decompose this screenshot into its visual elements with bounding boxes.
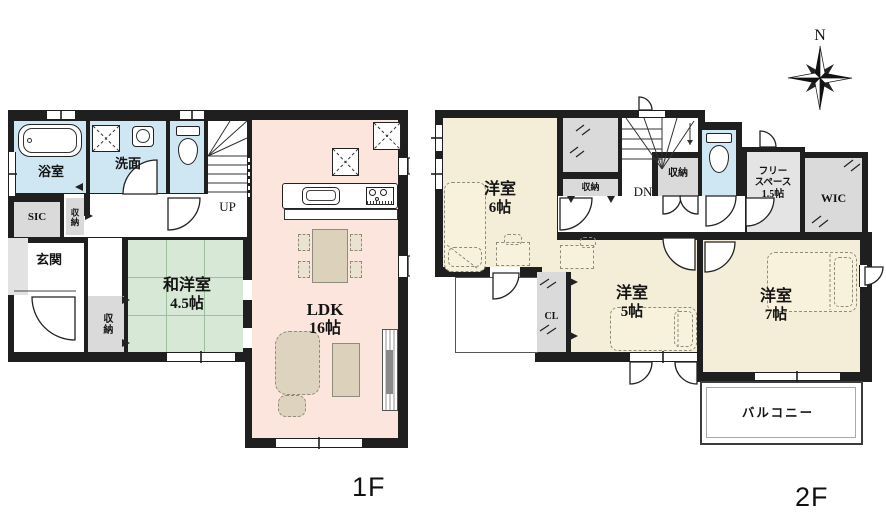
compass-rose: N [778,22,862,114]
window [859,265,868,287]
floor-plan-canvas: 浴室 洗面 SIC 収納 玄関 収納 和洋室4.5帖 LDK16帖 UP [0,0,886,532]
stairs-1f [208,121,247,199]
floor2-title: 2F [795,482,829,513]
bathtub-drain [27,138,32,143]
wall-stub [84,194,90,216]
dining-table [312,229,348,283]
window-arc-ldk [408,256,410,276]
toilet-tank-2f [706,133,732,143]
sliding-door-gap [243,328,252,348]
skylight-box [373,122,401,150]
sliding-door-gap [243,280,252,300]
free-space [747,152,800,232]
kitchen-counter-front [284,209,398,220]
window [435,125,443,151]
hallway-1f [64,194,247,237]
stove-burner [369,189,376,196]
tatami-grid-line [166,240,167,352]
bed-pillow [834,257,853,307]
window [276,438,362,448]
bedroom6-closet [563,118,618,172]
window [435,159,443,189]
window [167,352,235,362]
stove-grill [367,201,392,205]
tatami-grid-line [128,277,243,278]
floor2-plan: 洋室6帖 収納 DN 収納 フリー スペース 1.5帖 WIC CL 洋室5帖 … [430,95,886,460]
desk [560,245,594,269]
japanese-room [128,240,243,352]
wash-basin-bowl [136,129,150,143]
window [398,256,408,277]
window [398,158,408,175]
bed-pillow [674,311,693,347]
door-gap [490,267,520,277]
stair-storage [658,158,698,196]
window-arc-ldk [408,158,410,174]
roof-void-area [455,277,538,353]
coffee-table [332,343,360,397]
hall-storage [66,198,84,235]
top-storage-strip [563,179,618,196]
wic-room [805,158,862,232]
sofa-ottoman [278,395,306,417]
window-arc-bedroom5 [675,362,697,384]
window [755,372,840,381]
window-arc-stairs [639,97,652,110]
skylight-box [332,148,359,176]
dining-chair [298,234,310,251]
tatami-grid-line [128,315,243,316]
compass-north-label: N [814,27,826,44]
sofa [275,331,320,395]
lower-storage [88,296,124,352]
desk [496,242,530,266]
floor1-title: 1F [352,472,386,503]
toilet-tank-1f [176,126,200,136]
dining-chair [350,261,362,278]
window [639,110,665,118]
window-arc-freespace [760,131,776,147]
tv-screen [386,350,393,394]
closet-cl [537,272,566,352]
tatami-grid-line [204,240,205,352]
balcony-inner-line [706,387,856,438]
window [8,152,16,196]
window [630,352,697,362]
closet-front-strip [88,238,122,296]
washer-pan [92,125,120,152]
dining-chair [298,261,310,278]
dining-chair [350,234,362,251]
entrance-porch [8,238,28,295]
window [47,110,75,120]
window-arc-bedroom5 [630,362,652,384]
floor1-plan: 浴室 洗面 SIC 収納 玄関 収納 和洋室4.5帖 LDK16帖 UP [8,110,410,450]
wall-stub [84,243,88,296]
stove-burner [380,189,387,196]
sic-room [14,202,60,237]
chair [580,237,596,248]
chair [504,234,522,245]
bed-pillow [448,247,482,267]
corridor-2f [558,196,745,232]
wall-stub [566,272,571,352]
kitchen-sink-inner [306,190,336,201]
window [180,110,204,120]
